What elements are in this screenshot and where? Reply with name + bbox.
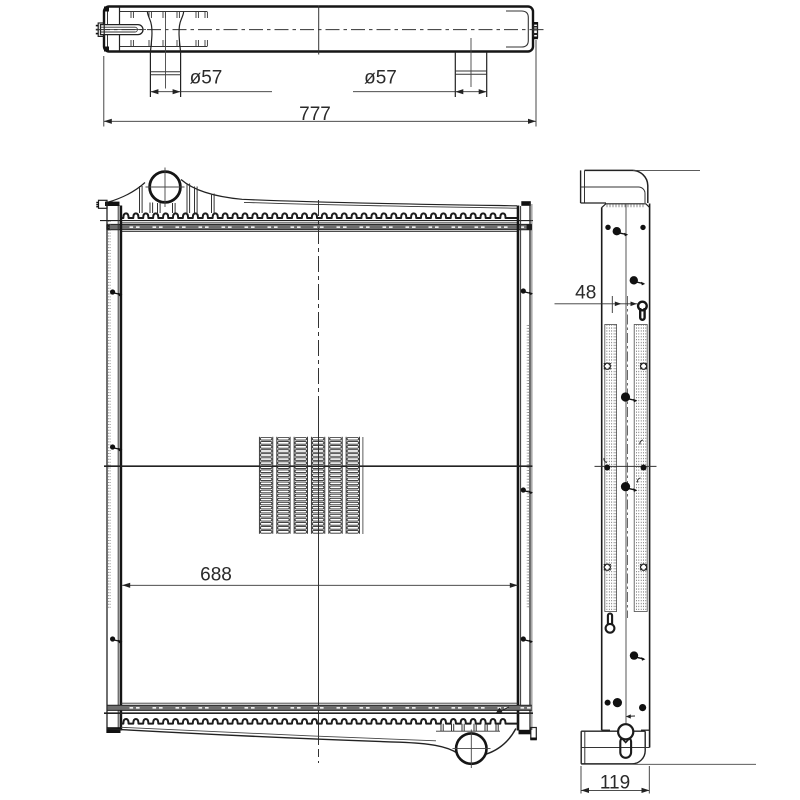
svg-text:48: 48 bbox=[575, 283, 596, 304]
svg-text:ø57: ø57 bbox=[190, 68, 223, 89]
svg-text:688: 688 bbox=[200, 565, 232, 586]
svg-text:119: 119 bbox=[600, 772, 630, 793]
svg-text:777: 777 bbox=[299, 104, 331, 125]
svg-text:ø57: ø57 bbox=[364, 68, 397, 89]
